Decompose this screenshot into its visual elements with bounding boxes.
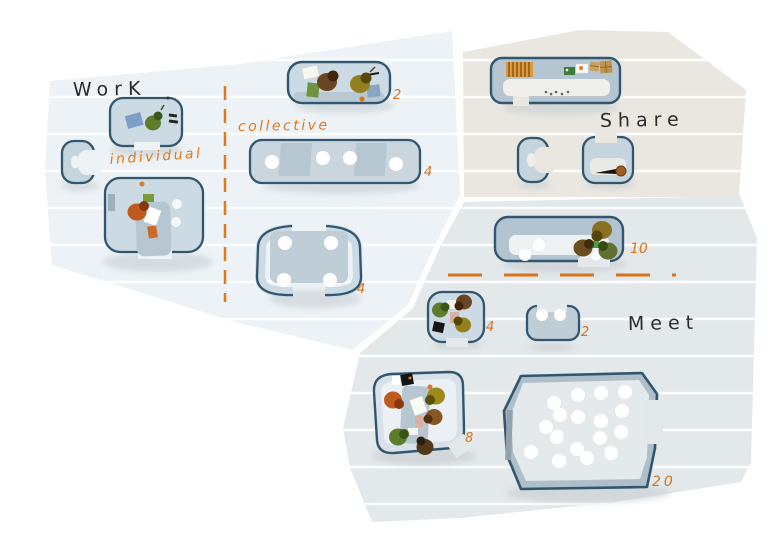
seat-dot: [554, 309, 566, 321]
capacity-label-duo-bench: 2: [581, 325, 589, 340]
capacity-label-meeting-room: 8: [465, 431, 473, 446]
tray: [564, 67, 575, 75]
meet-standing-table: [495, 217, 623, 267]
floor-plan-illustration: 2 4 4: [0, 0, 768, 559]
seat-dot: [324, 236, 338, 250]
capacity-label-collective-booth: 2: [393, 88, 401, 103]
seat-back: [279, 143, 312, 176]
zone-label-meet: Meet: [628, 312, 700, 335]
floor-plan: 2 4 4: [0, 0, 768, 559]
seat-dot: [389, 157, 403, 171]
seat-dot: [533, 239, 545, 251]
meet-presentation-room: [504, 373, 663, 489]
sublabel-collective: collective: [238, 117, 330, 135]
screen: [400, 373, 414, 386]
seat-back: [354, 143, 387, 176]
individual-big-pod: [105, 178, 203, 259]
seat-dot: [536, 309, 548, 321]
seat-dot: [519, 249, 531, 261]
capacity-label-presentation-room: 20: [652, 474, 676, 490]
paper: [392, 376, 400, 385]
seat-dot: [316, 151, 330, 165]
seat-dot: [265, 155, 279, 169]
zone-label-work: WorK: [73, 78, 147, 101]
meet-huddle-pod: [428, 292, 484, 347]
share-counter: [491, 58, 620, 106]
individual-small-pod: [110, 97, 182, 151]
paper: [143, 194, 154, 202]
collective-duo-booth: [288, 62, 390, 103]
capacity-label-huddle-pod: 4: [486, 320, 494, 335]
zone-label-share: Share: [600, 109, 685, 132]
seat-dot: [323, 273, 337, 287]
share-coffee-unit: [583, 131, 633, 183]
meet-duo-bench: [527, 300, 579, 340]
capacity-label-collective-bench: 4: [424, 165, 432, 180]
seat-dot: [277, 273, 291, 287]
seat-dot: [343, 151, 357, 165]
capacity-label-collective-table: 4: [357, 282, 365, 297]
collective-bench: [250, 140, 420, 183]
capacity-label-standing-table: 10: [630, 241, 648, 257]
book-stack: [506, 62, 533, 77]
meet-meeting-room: [374, 372, 473, 458]
seat-dot: [278, 236, 292, 250]
paper: [408, 428, 418, 435]
coffee-cup: [616, 166, 626, 176]
paper: [415, 416, 423, 427]
